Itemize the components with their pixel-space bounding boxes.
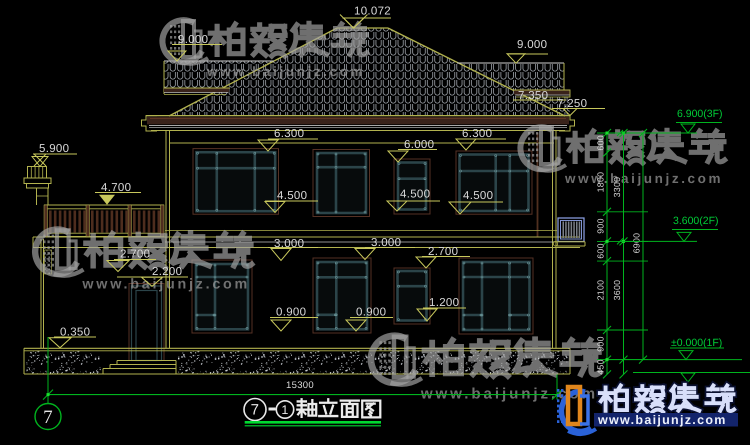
svg-text:www.baijunjz.com: www.baijunjz.com — [564, 171, 723, 186]
svg-text:6.300: 6.300 — [274, 128, 304, 140]
svg-text:4.500: 4.500 — [463, 190, 493, 202]
svg-text:www.baijunjz.com: www.baijunjz.com — [81, 276, 250, 292]
svg-text:4.500: 4.500 — [400, 189, 430, 201]
svg-text:600: 600 — [596, 135, 606, 151]
svg-text:1.200: 1.200 — [429, 297, 459, 309]
svg-text:6900: 6900 — [632, 233, 642, 254]
svg-text:0.900: 0.900 — [276, 307, 306, 319]
svg-text:3300: 3300 — [612, 177, 622, 198]
svg-text:600: 600 — [596, 243, 606, 259]
svg-text:3600: 3600 — [612, 280, 622, 301]
svg-text:www.baijunjz.com: www.baijunjz.com — [597, 413, 727, 427]
svg-text:9.000: 9.000 — [517, 39, 547, 51]
svg-text:3.600(2F): 3.600(2F) — [673, 215, 719, 227]
svg-text:www.baijunjz.com: www.baijunjz.com — [206, 64, 365, 79]
svg-text:4.500: 4.500 — [277, 190, 307, 202]
svg-text:2100: 2100 — [596, 280, 606, 301]
svg-text:2.200: 2.200 — [152, 266, 182, 278]
svg-text:0.900: 0.900 — [356, 307, 386, 319]
svg-text:5.900: 5.900 — [39, 143, 69, 155]
svg-text:900: 900 — [596, 336, 606, 352]
svg-text:10.072: 10.072 — [354, 6, 391, 18]
svg-text:450: 450 — [596, 359, 606, 375]
svg-text:1: 1 — [281, 403, 288, 417]
svg-text:15300: 15300 — [286, 380, 314, 391]
svg-text:2.700: 2.700 — [120, 249, 150, 261]
svg-text:900: 900 — [596, 218, 606, 234]
svg-text:7: 7 — [251, 402, 260, 419]
svg-text:7: 7 — [43, 407, 53, 428]
svg-text:1800: 1800 — [596, 172, 606, 193]
svg-text:6.900(3F): 6.900(3F) — [677, 108, 723, 120]
svg-text:6.300: 6.300 — [462, 128, 492, 140]
svg-text:±0.000(1F): ±0.000(1F) — [671, 337, 722, 349]
